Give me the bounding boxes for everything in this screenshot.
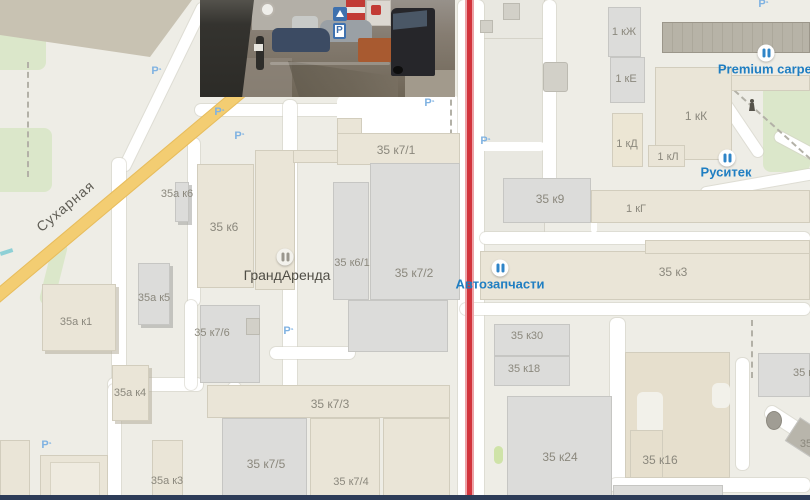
map-canvas[interactable]: Сухарная 35 к7/135 к635 к6/135 к7/235а к… — [0, 0, 810, 500]
parking-icon[interactable]: P₁ — [151, 65, 158, 77]
photo-crossing-sign — [333, 7, 347, 21]
tank-structure — [766, 411, 782, 430]
poi-glyph — [281, 253, 284, 262]
green-area — [763, 84, 810, 172]
building[interactable] — [480, 251, 810, 300]
building[interactable] — [0, 440, 30, 500]
parking-icon[interactable]: P₁ — [758, 0, 765, 10]
building[interactable] — [503, 178, 591, 223]
poi-glyph — [496, 264, 499, 273]
road — [736, 358, 749, 470]
fence-line — [478, 38, 545, 39]
building[interactable] — [507, 396, 612, 500]
photo-car — [272, 28, 330, 52]
poi-premium-carpet[interactable]: Premium carpet — [718, 62, 810, 77]
green-area — [494, 446, 503, 464]
poi-glyph — [501, 264, 504, 273]
utility-box — [480, 20, 493, 33]
building[interactable] — [612, 113, 643, 167]
parking-icon[interactable]: P₁ — [41, 439, 48, 451]
building[interactable] — [731, 75, 810, 91]
road — [478, 142, 545, 151]
poi-glyph — [767, 49, 770, 58]
building[interactable] — [370, 163, 460, 300]
grandarenda-icon[interactable] — [277, 249, 294, 266]
photo-inset[interactable]: P — [200, 0, 455, 97]
building[interactable] — [246, 318, 260, 335]
building[interactable] — [207, 385, 450, 418]
photo-reflection — [270, 62, 390, 65]
poi-grandarenda[interactable]: ГрандАренда — [244, 267, 331, 283]
building[interactable] — [662, 22, 810, 53]
road — [543, 0, 556, 192]
route-line[interactable] — [465, 0, 474, 497]
photo-van — [391, 8, 435, 76]
building[interactable] — [200, 305, 260, 383]
bottom-bar — [0, 495, 810, 500]
building[interactable] — [494, 324, 570, 356]
building[interactable] — [758, 353, 810, 397]
building-court — [637, 392, 663, 434]
building[interactable] — [42, 284, 116, 351]
poi-glyph — [286, 253, 289, 262]
poi-autoparts[interactable]: Автозапчасти — [456, 277, 545, 292]
path-dashed — [27, 62, 29, 177]
building[interactable] — [310, 418, 380, 500]
building[interactable] — [293, 150, 343, 163]
premium-carpet-icon[interactable] — [758, 45, 775, 62]
building[interactable] — [138, 263, 170, 325]
building[interactable] — [337, 133, 460, 165]
road — [460, 303, 810, 315]
green-area — [0, 128, 52, 192]
building[interactable] — [383, 418, 450, 500]
poi-rusitek[interactable]: Руситек — [701, 165, 752, 180]
utility-box — [503, 3, 520, 20]
tram-line-fragment — [0, 248, 13, 256]
monument-icon — [747, 99, 757, 111]
building[interactable] — [630, 430, 663, 478]
poi-glyph — [728, 154, 731, 163]
photo-person — [256, 36, 264, 70]
utility-box — [543, 62, 568, 92]
photo-paper — [254, 44, 263, 51]
building[interactable] — [175, 182, 189, 222]
building[interactable] — [333, 182, 369, 300]
building-court — [712, 383, 730, 408]
building[interactable] — [152, 440, 183, 500]
building[interactable] — [610, 57, 645, 103]
building[interactable] — [608, 7, 641, 57]
poi-glyph — [762, 49, 765, 58]
building[interactable] — [648, 145, 685, 167]
photo-parking-sign: P — [333, 23, 346, 39]
building[interactable] — [645, 240, 810, 254]
building[interactable] — [112, 365, 149, 421]
road — [185, 300, 197, 390]
building[interactable] — [591, 190, 810, 223]
path-dashed — [751, 320, 753, 378]
building[interactable] — [348, 300, 448, 352]
building[interactable] — [494, 356, 570, 386]
building[interactable] — [222, 418, 307, 500]
road — [270, 347, 355, 359]
poi-glyph — [723, 154, 726, 163]
photo-round-sign — [260, 2, 275, 17]
parking-icon[interactable]: P₁ — [234, 130, 241, 142]
autoparts-icon[interactable] — [492, 260, 509, 277]
